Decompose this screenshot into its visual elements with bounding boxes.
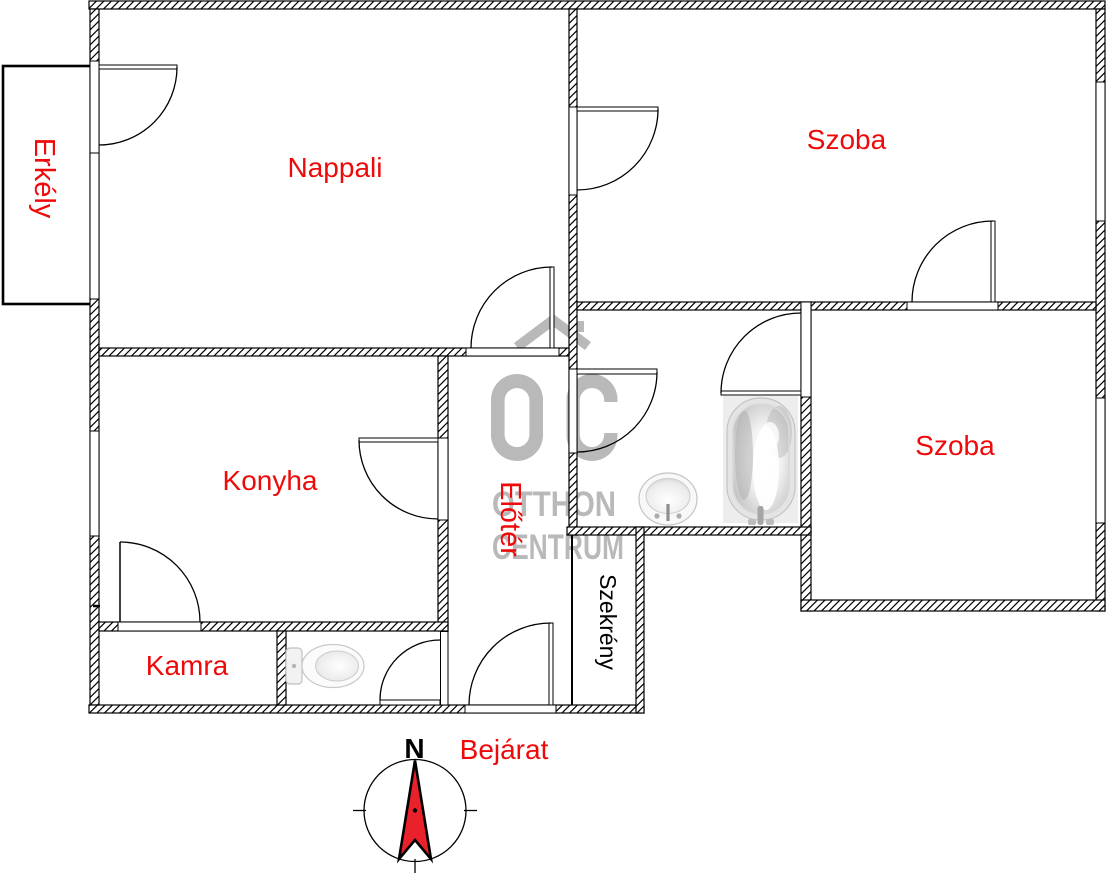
svg-text:Szoba: Szoba <box>807 124 887 155</box>
svg-text:N: N <box>404 733 424 764</box>
svg-text:Szekrény: Szekrény <box>595 574 621 670</box>
svg-text:Előtér: Előtér <box>494 481 526 557</box>
svg-text:Konyha: Konyha <box>223 465 318 496</box>
svg-text:Erkély: Erkély <box>28 138 60 219</box>
svg-text:Bejárat: Bejárat <box>460 734 549 765</box>
svg-text:Nappali: Nappali <box>288 152 383 183</box>
svg-text:Szoba: Szoba <box>915 430 995 461</box>
svg-text:Kamra: Kamra <box>146 650 229 681</box>
